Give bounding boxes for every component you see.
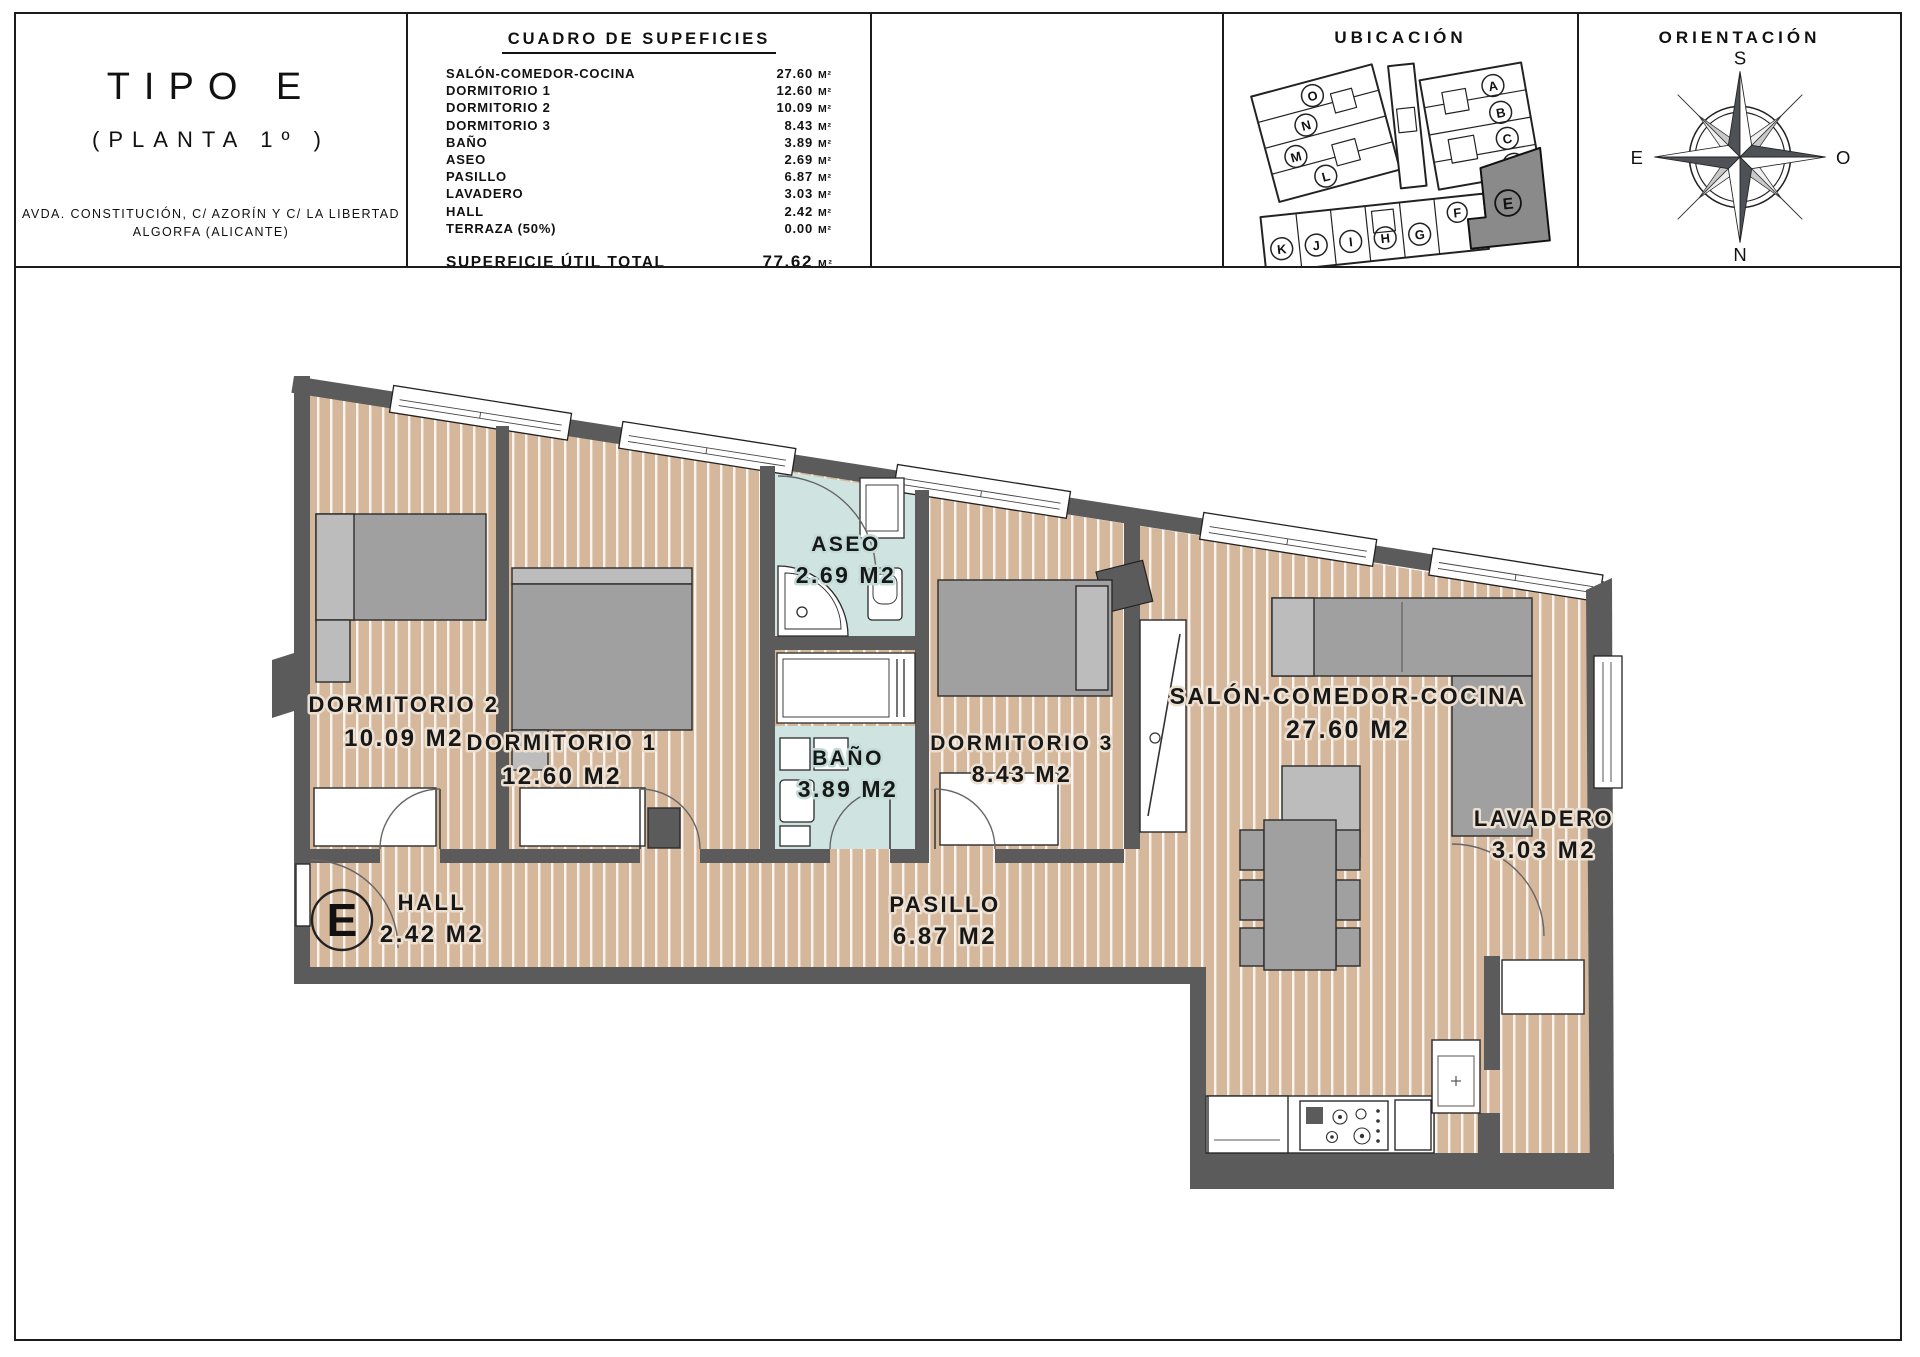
stove — [1300, 1101, 1388, 1150]
total-value: 77.62 — [747, 252, 813, 266]
panel-type: TIPO E (PLANTA 1º ) AVDA. CONSTITUCIÓN, … — [16, 14, 408, 266]
row-unit: M² — [813, 119, 844, 135]
dining-set — [1240, 820, 1360, 970]
room-label-dormitorio1: DORMITORIO 1 — [467, 730, 658, 755]
wall-dorm1-bath — [760, 466, 775, 863]
panel-location: UBICACIÓN O N — [1224, 14, 1579, 266]
dresser-dorm2 — [314, 788, 436, 846]
row-label: SALÓN-COMEDOR-COCINA — [446, 66, 747, 82]
row-unit: M² — [813, 205, 844, 221]
wall-left-pilaster — [272, 653, 294, 718]
room-area-hall: 2.42 M2 — [380, 921, 484, 948]
compass-rose: S N E O — [1610, 48, 1870, 266]
wall-kitchen-south — [1190, 1153, 1614, 1189]
row-label: DORMITORIO 3 — [446, 118, 747, 134]
room-area-salon: 27.60 M2 — [1286, 716, 1410, 744]
room-label-salon: SALÓN-COMEDOR-COCINA — [1170, 682, 1527, 709]
room-area-aseo: 2.69 M2 — [796, 562, 897, 588]
table-row: DORMITORIO 210.09M² — [408, 100, 870, 117]
wall-bath-dorm3 — [915, 490, 929, 863]
site-unit-letter: H — [1379, 230, 1390, 246]
wall-lavadero-1 — [1484, 956, 1500, 1070]
row-unit: M² — [813, 136, 844, 152]
panel-orientation: ORIENTACIÓN S N — [1579, 14, 1900, 266]
room-label-dormitorio2: DORMITORIO 2 — [309, 692, 500, 717]
entrance-marker-letter: E — [327, 894, 358, 946]
plan-type-title: TIPO E — [16, 66, 406, 109]
room-label-pasillo: PASILLO — [889, 892, 1000, 917]
room-area-dormitorio3: 8.43 M2 — [972, 761, 1073, 787]
table-row: DORMITORIO 38.43M² — [408, 118, 870, 135]
wall-corridor-2 — [440, 849, 640, 863]
row-value: 3.03 — [747, 186, 813, 202]
surfaces-table-title: CUADRO DE SUPEFICIES — [502, 30, 777, 54]
wall-hall-south — [294, 967, 1206, 984]
row-label: DORMITORIO 2 — [446, 100, 747, 116]
floor-plan: E DORMITORIO 2 10.09 M2 DORMITORIO 1 12.… — [16, 268, 1900, 1339]
row-unit: M² — [813, 84, 844, 100]
wall-corridor-4 — [890, 849, 929, 863]
orientation-title: ORIENTACIÓN — [1579, 28, 1900, 48]
total-label: SUPERFICIE ÚTIL TOTAL — [446, 253, 747, 266]
row-unit: M² — [813, 170, 844, 186]
row-value: 27.60 — [747, 66, 813, 82]
row-value: 6.87 — [747, 169, 813, 185]
table-row: SALÓN-COMEDOR-COCINA27.60M² — [408, 66, 870, 83]
room-area-dormitorio1: 12.60 M2 — [502, 763, 622, 790]
room-label-bano: BAÑO — [812, 747, 884, 770]
row-label: LAVADERO — [446, 186, 747, 202]
table-row: ASEO2.69M² — [408, 152, 870, 169]
row-label: BAÑO — [446, 135, 747, 151]
table-total-row: SUPERFICIE ÚTIL TOTAL77.62M² — [408, 252, 870, 266]
row-value: 0.00 — [747, 221, 813, 237]
site-map: O N M L — [1246, 52, 1556, 266]
room-area-pasillo: 6.87 M2 — [893, 923, 997, 950]
block-dorm1 — [648, 808, 680, 848]
room-label-dormitorio3: DORMITORIO 3 — [930, 732, 1114, 755]
row-value: 3.89 — [747, 135, 813, 151]
dresser-dorm1 — [520, 788, 645, 846]
address-line-1: AVDA. CONSTITUCIÓN, C/ AZORÍN Y C/ LA LI… — [16, 205, 406, 223]
location-title: UBICACIÓN — [1224, 28, 1577, 48]
sink-aseo — [860, 478, 904, 538]
room-label-hall: HALL — [398, 890, 467, 915]
bed-dorm3 — [938, 580, 1112, 696]
compass-label-west: O — [1835, 147, 1849, 168]
compass-label-east: E — [1630, 147, 1642, 168]
site-unit-letter-e: E — [1502, 195, 1514, 213]
wall-lavadero-2 — [1478, 1113, 1500, 1173]
room-label-aseo: ASEO — [811, 533, 881, 556]
site-block-left: O N M L — [1251, 64, 1400, 202]
row-value: 12.60 — [747, 83, 813, 99]
row-label: HALL — [446, 204, 747, 220]
project-address: AVDA. CONSTITUCIÓN, C/ AZORÍN Y C/ LA LI… — [16, 205, 406, 241]
drawing-sheet: TIPO E (PLANTA 1º ) AVDA. CONSTITUCIÓN, … — [14, 12, 1902, 1341]
table-row: LAVADERO3.03M² — [408, 186, 870, 203]
row-label: TERRAZA (50%) — [446, 221, 747, 237]
site-unit-letter: G — [1413, 227, 1425, 243]
address-line-2: ALGORFA (ALICANTE) — [16, 223, 406, 241]
row-value: 10.09 — [747, 100, 813, 116]
row-value: 2.42 — [747, 204, 813, 220]
row-unit: M² — [813, 222, 844, 238]
washing-machine — [1432, 1040, 1480, 1113]
table-row: TERRAZA (50%)0.00M² — [408, 221, 870, 238]
total-unit: M² — [813, 255, 844, 266]
table-row: PASILLO6.87M² — [408, 169, 870, 186]
row-unit: M² — [813, 187, 844, 203]
panel-empty — [872, 14, 1224, 266]
bathtub — [777, 653, 915, 723]
wall-corridor-3 — [700, 849, 830, 863]
compass-label-south: S — [1733, 48, 1745, 69]
row-value: 2.69 — [747, 152, 813, 168]
panel-surfaces-table: CUADRO DE SUPEFICIES SALÓN-COMEDOR-COCIN… — [408, 14, 872, 266]
row-unit: M² — [813, 153, 844, 169]
room-area-dormitorio2: 10.09 M2 — [344, 725, 464, 752]
lavadero-shelf — [1502, 960, 1584, 1014]
kitchen-counter — [1206, 1096, 1434, 1153]
room-area-bano: 3.89 M2 — [798, 776, 899, 802]
room-label-lavadero: LAVADERO — [1474, 806, 1614, 831]
table-row: HALL2.42M² — [408, 204, 870, 221]
row-label: DORMITORIO 1 — [446, 83, 747, 99]
table-row: DORMITORIO 112.60M² — [408, 83, 870, 100]
row-label: ASEO — [446, 152, 747, 168]
wardrobe-sliding — [1140, 620, 1186, 832]
compass-label-north: N — [1733, 244, 1746, 265]
site-block-bottom: K J I H G F — [1260, 194, 1488, 266]
table-row: BAÑO3.89M² — [408, 135, 870, 152]
wall-aseo-south — [775, 636, 915, 650]
wall-corridor-5 — [995, 849, 1124, 863]
room-area-lavadero: 3.03 M2 — [1492, 837, 1596, 864]
floor-plan-drawing: E DORMITORIO 2 10.09 M2 DORMITORIO 1 12.… — [16, 268, 1900, 1339]
row-unit: M² — [813, 67, 844, 83]
title-block: TIPO E (PLANTA 1º ) AVDA. CONSTITUCIÓN, … — [16, 14, 1900, 268]
row-value: 8.43 — [747, 118, 813, 134]
row-unit: M² — [813, 101, 844, 117]
row-label: PASILLO — [446, 169, 747, 185]
window-right — [1594, 656, 1622, 788]
plan-floor-subtitle: (PLANTA 1º ) — [16, 127, 406, 153]
